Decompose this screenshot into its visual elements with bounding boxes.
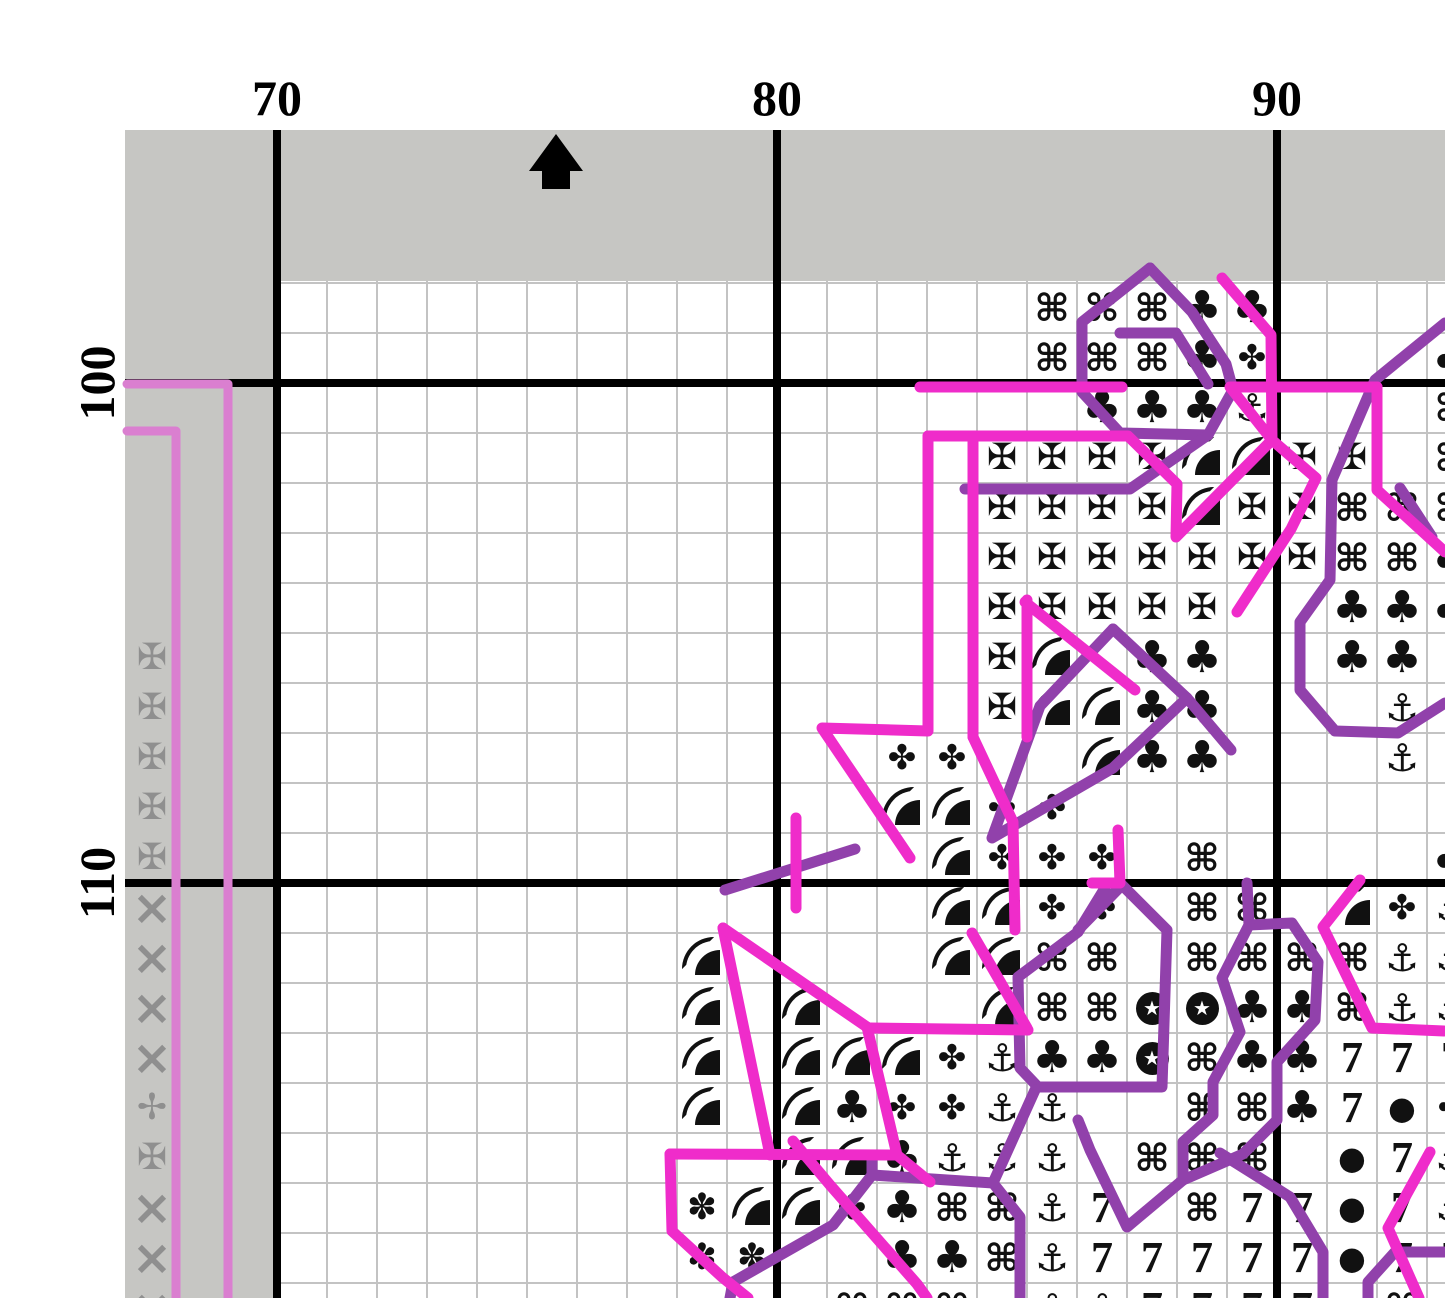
backstitch-purple-line (725, 849, 855, 890)
backstitch-purple-line (1018, 885, 1167, 1087)
col-ruler-label: 90 (1252, 69, 1302, 127)
row-ruler-label: 100 (68, 346, 126, 421)
row-ruler-label: 110 (68, 847, 126, 919)
backstitch-magenta-line (822, 436, 928, 858)
backstitch-magenta-line (1025, 602, 1135, 690)
backstitch-magenta-line (1323, 880, 1444, 1031)
page-overlap-orchid-line (127, 431, 176, 1298)
backstitch-purple-line (1078, 883, 1318, 1227)
backstitch-purple-line (733, 1157, 872, 1282)
backstitch-purple-line (1183, 925, 1249, 1180)
backstitch-magenta-line (870, 1028, 1028, 1030)
backstitch-purple-line (1082, 268, 1233, 435)
pattern-page: ⌘⌘⌘♣♣⌘⌘⌘♣✤♣♣♣♣⚓⌘✠✠✠✠✠✠⌘✠✠✠✠✠✠⌘⌘⌘✠✠✠✠✠✠✠⌘… (0, 0, 1445, 1298)
backstitch-magenta-line (1377, 387, 1445, 552)
col-ruler-label: 80 (752, 69, 802, 127)
backstitch-magenta-line (670, 1154, 897, 1155)
backstitch-purple-line (1220, 1153, 1323, 1298)
backstitch-purple-line (1120, 333, 1208, 384)
col-ruler-label: 70 (252, 69, 302, 127)
backstitch-purple-line (993, 1090, 1035, 1183)
backstitch-magenta-line (1388, 1152, 1430, 1298)
backstitch-purple-line (872, 1175, 1020, 1298)
backstitch-layer (0, 0, 1445, 1298)
backstitch-magenta-line (1092, 830, 1120, 883)
